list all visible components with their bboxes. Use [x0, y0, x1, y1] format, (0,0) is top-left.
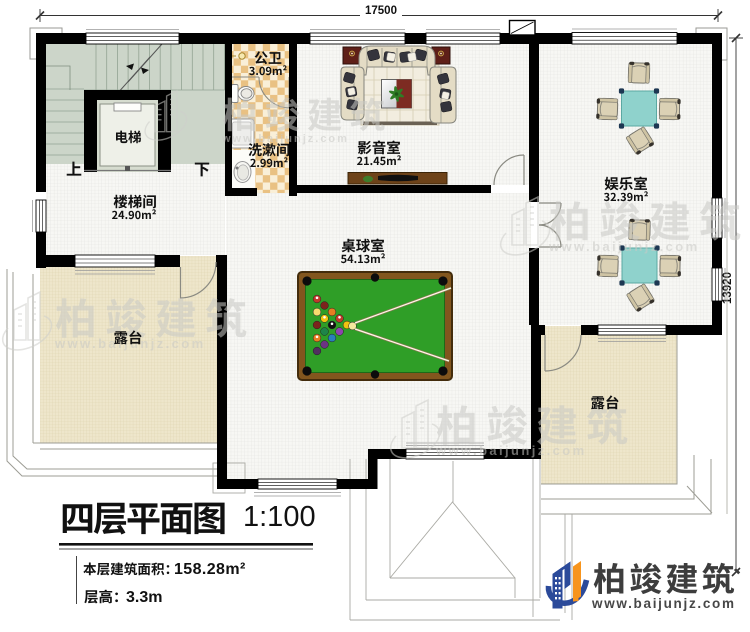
- svg-text:www.baijunjz.com: www.baijunjz.com: [548, 239, 700, 254]
- svg-text:3.3m: 3.3m: [126, 589, 162, 606]
- svg-text:www.baijunjz.com: www.baijunjz.com: [435, 443, 587, 458]
- svg-text:www.baijunjz.com: www.baijunjz.com: [591, 596, 736, 611]
- svg-text:www.baijunjz.com: www.baijunjz.com: [221, 133, 349, 145]
- svg-text:158.28m²: 158.28m²: [174, 561, 246, 578]
- svg-text:13920: 13920: [722, 272, 734, 304]
- svg-text:www.baijunjz.com: www.baijunjz.com: [54, 336, 206, 351]
- svg-text:17500: 17500: [365, 5, 397, 17]
- svg-text:1:100: 1:100: [243, 501, 316, 533]
